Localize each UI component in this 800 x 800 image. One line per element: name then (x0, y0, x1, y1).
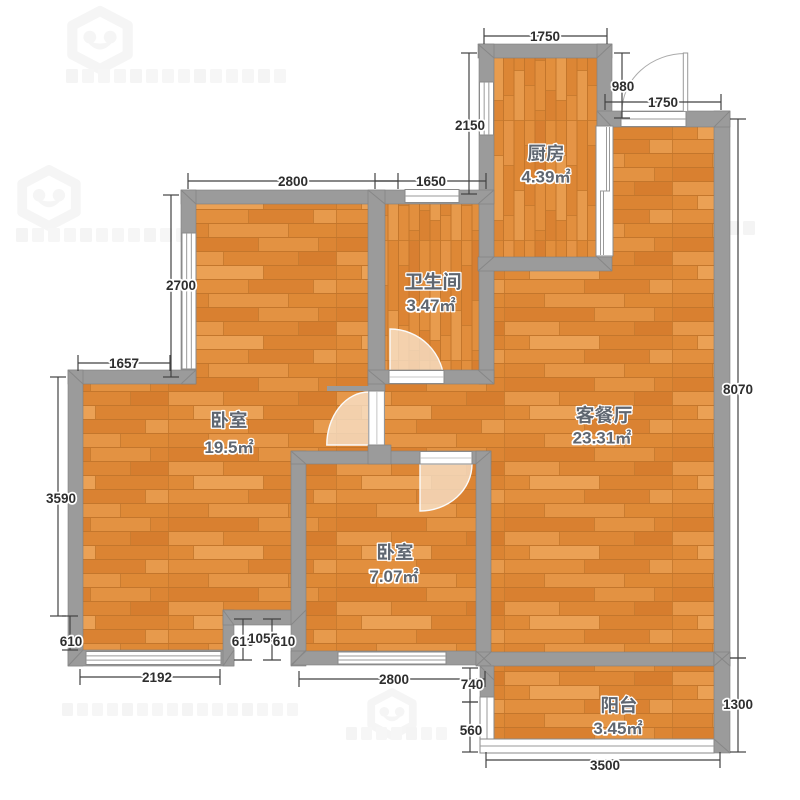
svg-text:3.47: 3.47 (406, 296, 439, 315)
svg-text:560: 560 (460, 723, 483, 738)
svg-text:3500: 3500 (590, 758, 620, 773)
svg-text:610: 610 (60, 634, 83, 649)
svg-text:2800: 2800 (379, 672, 409, 687)
svg-text:8070: 8070 (723, 382, 753, 397)
svg-text:19.5: 19.5 (204, 438, 237, 457)
svg-text:7.07: 7.07 (369, 567, 402, 586)
svg-text:3.45: 3.45 (593, 719, 626, 738)
svg-text:4.39: 4.39 (521, 168, 554, 187)
svg-text:740: 740 (461, 677, 484, 692)
svg-text:1650: 1650 (416, 174, 446, 189)
svg-text:1300: 1300 (723, 697, 753, 712)
svg-text:980: 980 (612, 79, 635, 94)
svg-text:1750: 1750 (530, 29, 560, 44)
svg-text:2192: 2192 (142, 670, 172, 685)
svg-text:1750: 1750 (648, 95, 678, 110)
svg-text:2150: 2150 (455, 118, 485, 133)
svg-text:23.31: 23.31 (573, 429, 616, 448)
svg-text:610: 610 (273, 634, 296, 649)
svg-text:3590: 3590 (46, 491, 76, 506)
svg-text:2800: 2800 (278, 174, 308, 189)
svg-text:2700: 2700 (166, 278, 196, 293)
svg-text:1657: 1657 (109, 356, 139, 371)
